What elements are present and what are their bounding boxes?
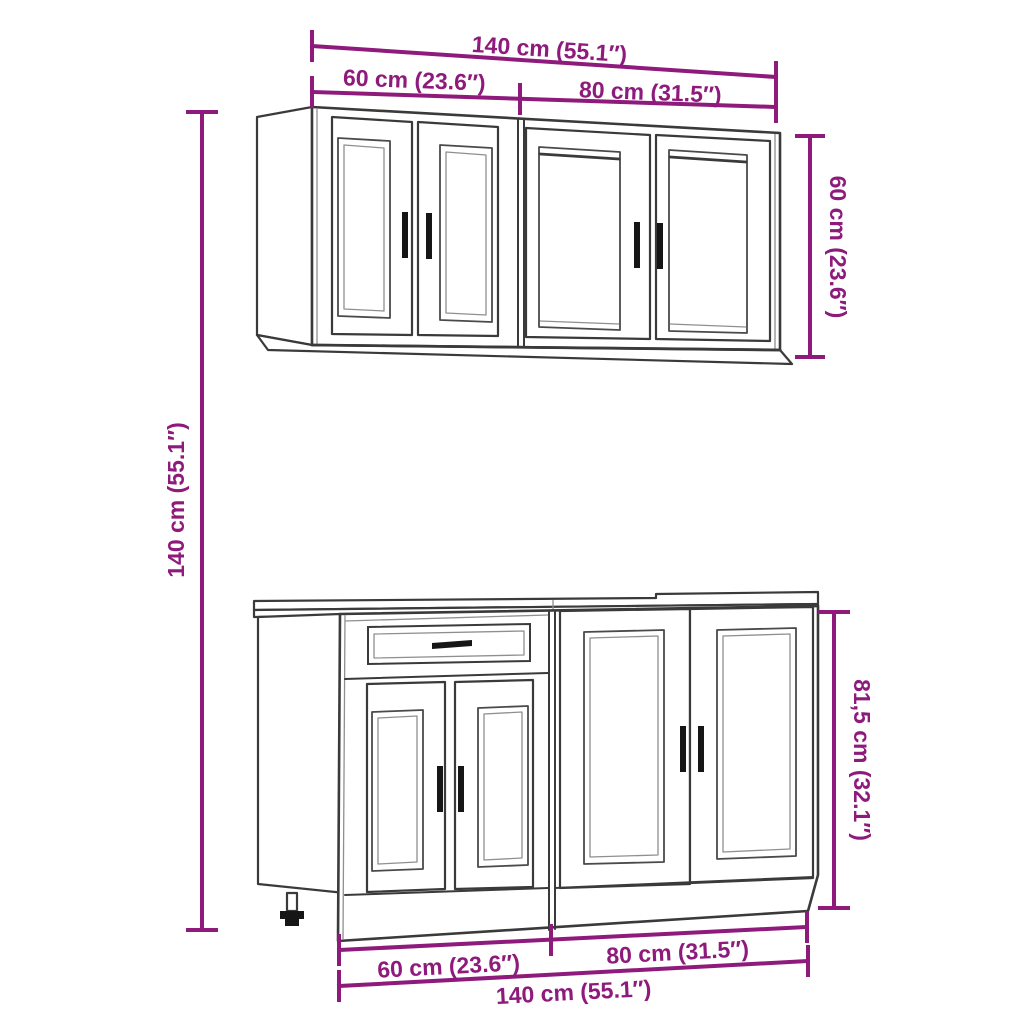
wall-80-handle-right [657, 223, 663, 269]
foot-stem [287, 893, 297, 911]
wall-80-door-right [656, 135, 770, 341]
dim-wall-cabinet-height: 60 cm (23.6″) [797, 136, 851, 357]
dim-label-top-total-width: 140 cm (55.1″) [471, 31, 628, 67]
wall-80-door-left [526, 128, 650, 339]
wall-unit-left-side-panel [257, 107, 312, 345]
wall-cabinet-60 [332, 117, 524, 347]
dim-label-base-cabinet-height: 81,5 cm (32.1″) [849, 679, 875, 841]
dim-overall-height: 140 cm (55.1″) [163, 112, 216, 930]
cabinet-dimension-diagram: 140 cm (55.1″) 60 cm (23.6″) 80 cm (31.5… [0, 0, 1024, 1024]
base-cabinet-unit [254, 592, 818, 941]
base-60-handle-right [458, 766, 464, 812]
dim-label-overall-height: 140 cm (55.1″) [163, 422, 189, 578]
base-80-handle-right [698, 726, 704, 772]
base-80-handle-left [680, 726, 686, 772]
wall-60-handle-right [426, 213, 432, 259]
base-60-handle-left [437, 766, 443, 812]
foot-base [285, 919, 299, 926]
product-dimension-image: 140 cm (55.1″) 60 cm (23.6″) 80 cm (31.5… [0, 0, 1024, 1024]
dim-label-top-wall-right-width: 80 cm (31.5″) [579, 76, 723, 107]
dim-base-cabinet-height: 81,5 cm (32.1″) [820, 612, 875, 908]
wall-60-handle-left [402, 212, 408, 258]
base-80-door-left [560, 609, 690, 888]
wall-cabinet-80 [526, 128, 770, 341]
foot-plate [280, 911, 304, 919]
base-60-door-left [367, 682, 445, 892]
adjustable-foot [280, 893, 304, 926]
dim-label-bottom-total-width: 140 cm (55.1″) [495, 975, 652, 1009]
base-80-door-right [690, 607, 813, 883]
base-unit-left-side-panel [258, 614, 345, 893]
wall-80-handle-left [634, 222, 640, 268]
dim-label-top-wall-left-width: 60 cm (23.6″) [343, 64, 487, 95]
dim-label-wall-cabinet-height: 60 cm (23.6″) [825, 176, 851, 319]
wall-cabinet-unit [257, 107, 792, 364]
